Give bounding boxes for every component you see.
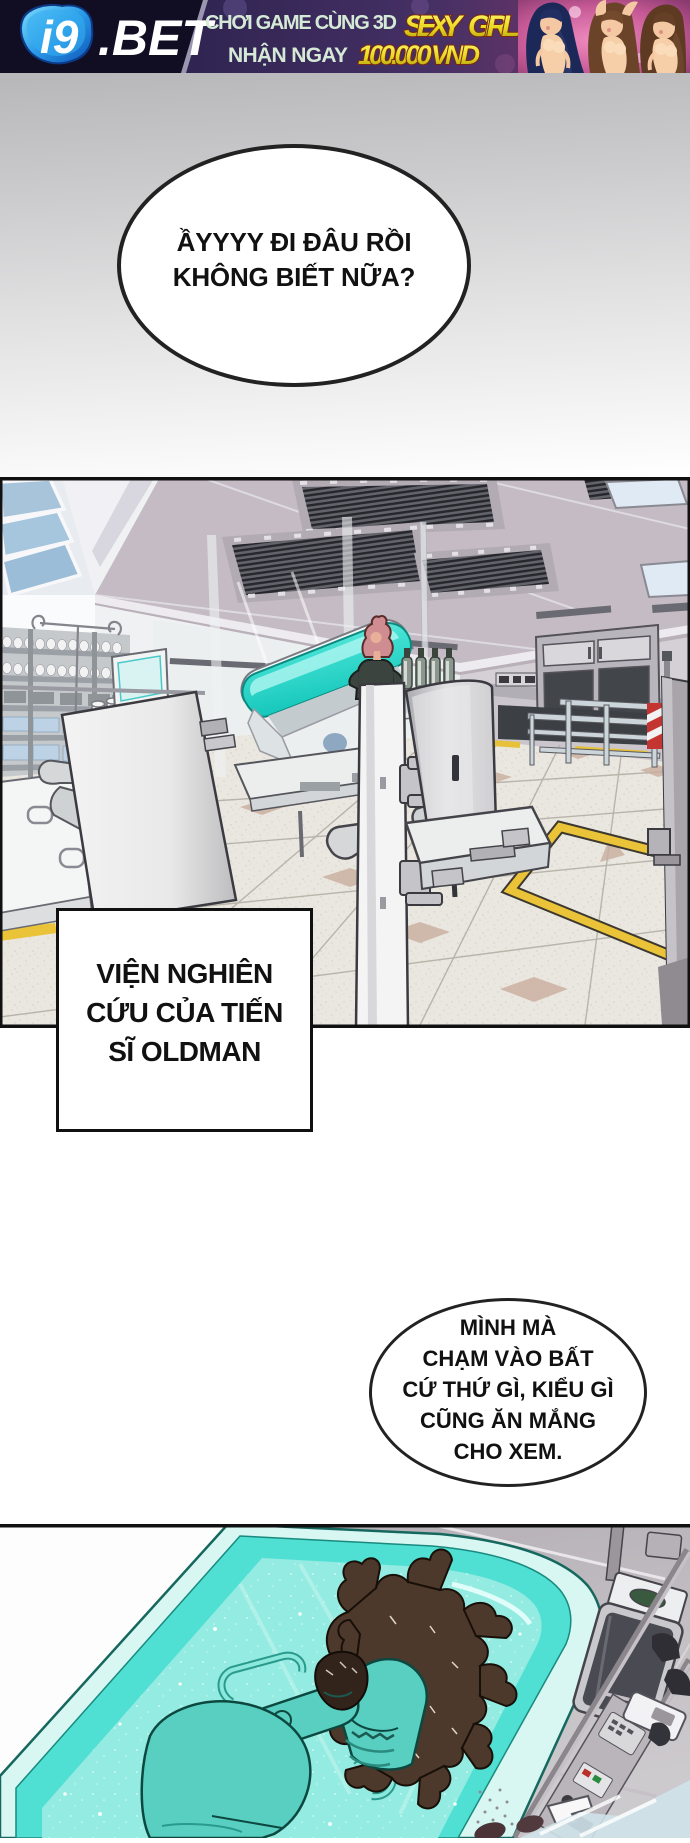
svg-text:.BET: .BET xyxy=(98,10,216,66)
svg-text:i9: i9 xyxy=(40,11,79,63)
svg-text:NHẬN NGAY: NHẬN NGAY xyxy=(228,43,348,67)
svg-text:CHƠI GAME CÙNG 3D: CHƠI GAME CÙNG 3D xyxy=(205,10,397,34)
svg-text:GIRL: GIRL xyxy=(468,10,520,43)
svg-text:SEXY: SEXY xyxy=(404,10,465,43)
svg-text:100.000 VND: 100.000 VND xyxy=(358,40,480,70)
